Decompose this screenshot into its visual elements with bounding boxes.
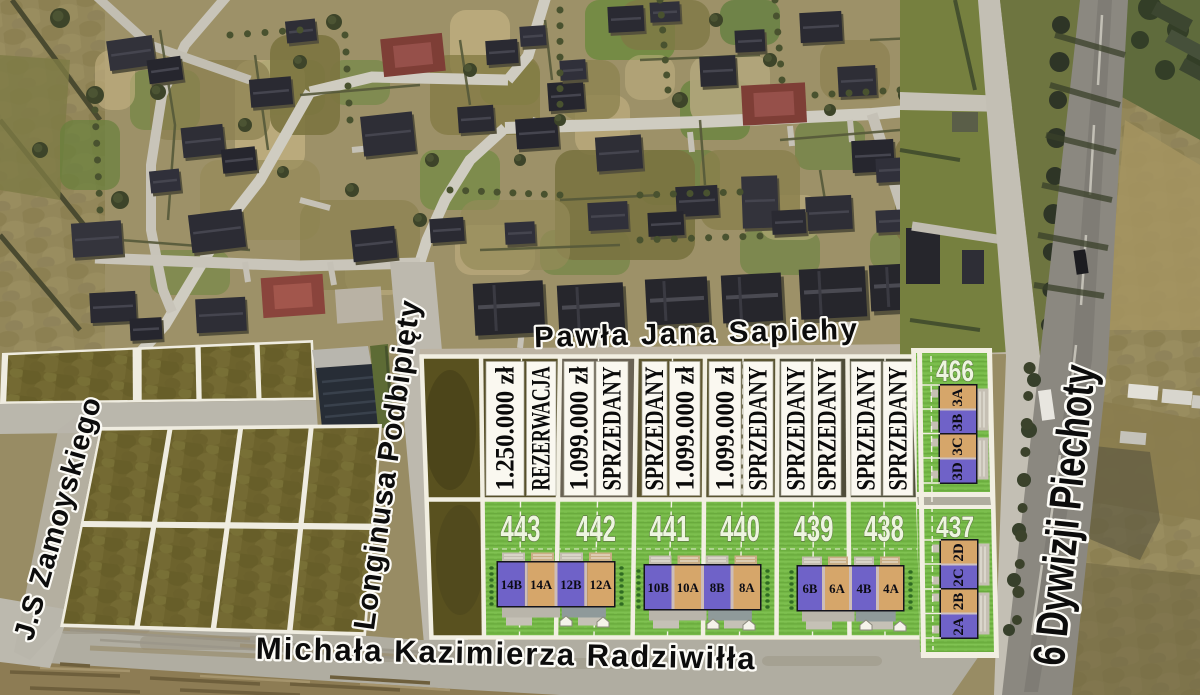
svg-text:1.099.000 zł: 1.099.000 zł xyxy=(670,366,699,491)
svg-text:443: 443 xyxy=(501,508,541,549)
svg-text:10B: 10B xyxy=(648,581,670,595)
svg-text:14B: 14B xyxy=(501,578,523,592)
svg-text:SPRZEDANY: SPRZEDANY xyxy=(598,366,627,490)
svg-text:3D: 3D xyxy=(950,462,966,481)
svg-text:3C: 3C xyxy=(950,437,966,455)
svg-text:12A: 12A xyxy=(590,578,613,592)
svg-text:441: 441 xyxy=(650,508,690,549)
svg-text:4A: 4A xyxy=(883,582,899,596)
svg-text:1.099.000 zł: 1.099.000 zł xyxy=(711,366,740,491)
svg-text:REZERWACJA: REZERWACJA xyxy=(527,366,556,490)
svg-text:SPRZEDANY: SPRZEDANY xyxy=(782,366,811,490)
svg-text:SPRZEDANY: SPRZEDANY xyxy=(744,366,773,490)
svg-text:6B: 6B xyxy=(803,582,818,596)
svg-text:6A: 6A xyxy=(829,582,845,596)
svg-text:14A: 14A xyxy=(530,578,553,592)
svg-text:2B: 2B xyxy=(951,593,967,611)
svg-text:2D: 2D xyxy=(951,543,967,562)
svg-text:1.250.000 zł: 1.250.000 zł xyxy=(491,366,520,491)
svg-text:4B: 4B xyxy=(857,582,872,596)
svg-text:SPRZEDANY: SPRZEDANY xyxy=(640,366,669,490)
svg-text:466: 466 xyxy=(936,355,974,388)
svg-text:10A: 10A xyxy=(677,581,700,595)
svg-text:1.099.000 zł: 1.099.000 zł xyxy=(565,366,594,491)
svg-text:SPRZEDANY: SPRZEDANY xyxy=(813,366,842,490)
svg-text:440: 440 xyxy=(720,508,760,549)
svg-text:439: 439 xyxy=(794,508,834,549)
svg-text:SPRZEDANY: SPRZEDANY xyxy=(884,366,913,490)
svg-text:SPRZEDANY: SPRZEDANY xyxy=(852,366,881,490)
svg-text:8B: 8B xyxy=(710,581,725,595)
svg-text:3B: 3B xyxy=(950,414,966,432)
svg-text:8A: 8A xyxy=(739,581,755,595)
svg-text:438: 438 xyxy=(864,508,904,549)
svg-text:12B: 12B xyxy=(560,578,582,592)
svg-text:2C: 2C xyxy=(951,568,967,586)
svg-text:3A: 3A xyxy=(950,388,966,407)
svg-text:442: 442 xyxy=(576,508,616,549)
svg-text:2A: 2A xyxy=(951,617,967,636)
